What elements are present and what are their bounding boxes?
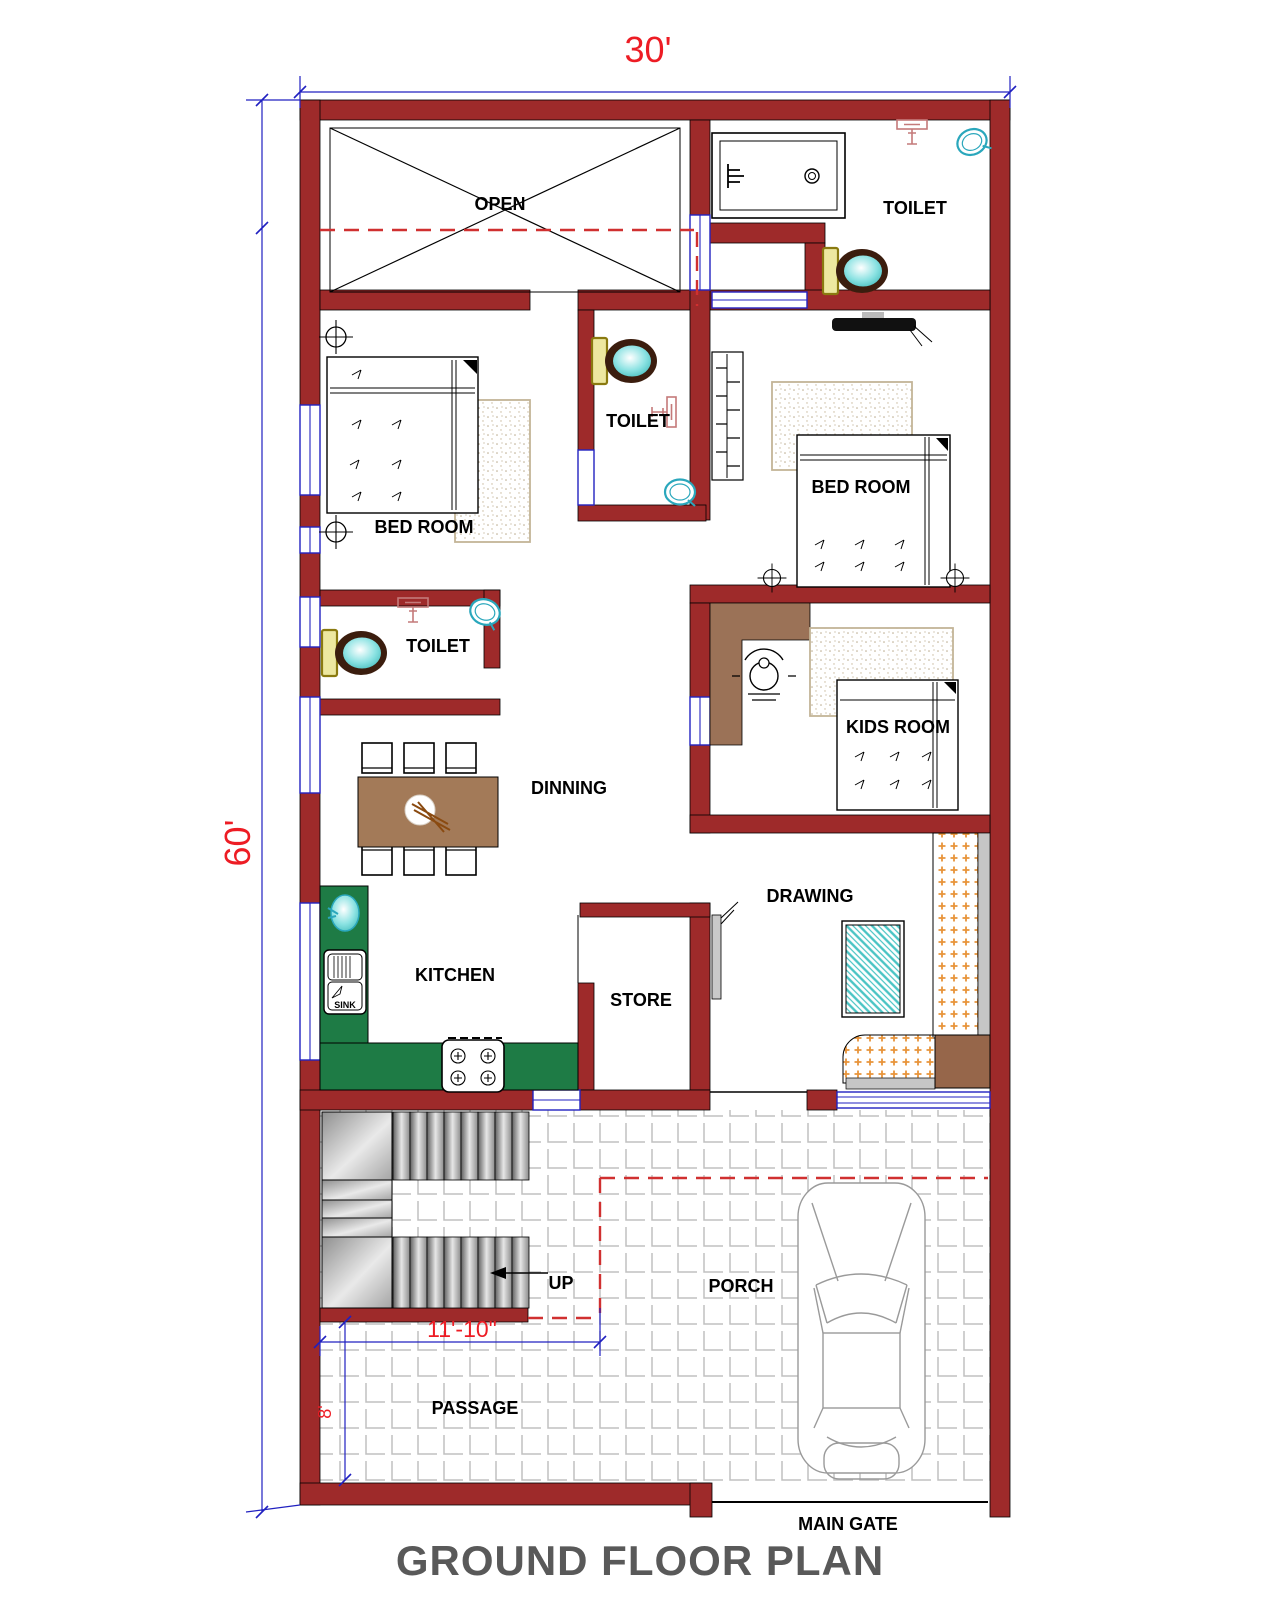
sofa-back — [978, 833, 990, 1038]
door-threshold — [533, 1090, 580, 1110]
ground-floor-plan: OPEN TOILET BED ROOM TOILET — [0, 0, 1280, 1600]
center-table — [842, 921, 904, 1017]
room-label-drawing: DRAWING — [767, 886, 854, 906]
kitchen: SINK KITCHEN — [320, 886, 578, 1092]
shower-icon — [897, 120, 927, 144]
bed — [797, 435, 950, 587]
toilet-middle: TOILET — [592, 338, 695, 506]
kids-room: KIDS ROOM — [710, 603, 958, 810]
open-area: OPEN — [320, 128, 697, 306]
dim-plot-width: 30' — [625, 29, 672, 70]
entrance-threshold — [837, 1092, 990, 1108]
store-room: STORE — [610, 990, 672, 1010]
room-label-dinning: DINNING — [531, 778, 607, 798]
window — [300, 527, 320, 553]
room-label-store: STORE — [610, 990, 672, 1010]
wardrobe — [712, 352, 743, 480]
window — [300, 903, 320, 1060]
window — [300, 405, 320, 495]
floor-plan-page: OPEN TOILET BED ROOM TOILET — [0, 0, 1280, 1600]
dim-stair-width: 11'-10" — [427, 1316, 497, 1342]
bed — [327, 357, 478, 513]
toilet-icon — [823, 248, 888, 294]
bathtub-icon — [712, 133, 845, 218]
sofa — [933, 833, 978, 1038]
room-label-passage: PASSAGE — [432, 1398, 519, 1418]
room-label-open: OPEN — [474, 194, 525, 214]
toilet-icon — [592, 338, 657, 384]
sink-icon — [665, 480, 695, 507]
dim-passage-width: 8' — [315, 1405, 335, 1418]
window — [690, 697, 710, 745]
main-gate-label: MAIN GATE — [798, 1514, 898, 1534]
plan-title: GROUND FLOOR PLAN — [396, 1537, 884, 1584]
bed — [837, 680, 958, 810]
window — [712, 292, 807, 308]
bed-room-left: BED ROOM — [319, 320, 530, 549]
tv — [712, 902, 738, 999]
room-label-porch: PORCH — [708, 1276, 773, 1296]
bed-room-right: BED ROOM — [712, 312, 969, 592]
window — [300, 597, 320, 647]
dinning-area: DINNING — [358, 743, 607, 875]
dim-plot-height: 60' — [217, 820, 258, 867]
main-gate: MAIN GATE — [798, 1514, 898, 1534]
toilet-top-right: TOILET — [712, 120, 992, 294]
room-label-kids: KIDS ROOM — [846, 717, 950, 737]
stove-icon — [442, 1038, 504, 1092]
room-label-toilet-left: TOILET — [406, 636, 470, 656]
corner-table — [935, 1035, 990, 1088]
tv — [832, 312, 932, 346]
sink-label: SINK — [334, 1000, 356, 1010]
room-label-kitchen: KITCHEN — [415, 965, 495, 985]
stair-landing — [322, 1112, 392, 1180]
window — [300, 697, 320, 793]
sofa-back — [846, 1078, 935, 1089]
room-label-toilet-middle: TOILET — [606, 411, 670, 431]
door-opening — [578, 450, 594, 505]
fan-icon — [319, 515, 353, 549]
stairs-up-label: UP — [548, 1273, 573, 1293]
passage: PASSAGE — [432, 1398, 519, 1418]
fan-icon — [319, 320, 353, 354]
door-opening — [690, 215, 710, 290]
stair-landing — [322, 1237, 392, 1308]
car — [798, 1183, 925, 1479]
toilet-left: TOILET — [322, 595, 503, 676]
toilet-icon — [322, 630, 387, 676]
sofa — [843, 1035, 935, 1083]
sink-icon — [953, 124, 991, 161]
drawing-room: DRAWING — [712, 833, 990, 1089]
room-label-toilet-top: TOILET — [883, 198, 947, 218]
kitchen-sink-unit: SINK — [324, 950, 366, 1014]
stair-treads-upper — [393, 1112, 529, 1180]
room-label-bed-right: BED ROOM — [812, 477, 911, 497]
room-label-bed-left: BED ROOM — [375, 517, 474, 537]
